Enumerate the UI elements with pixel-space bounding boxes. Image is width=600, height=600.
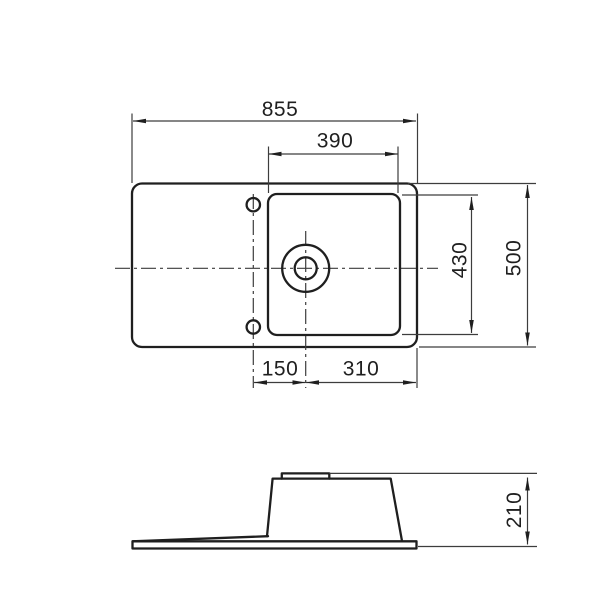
dimension-arrow xyxy=(403,380,416,385)
top-view: 855 390 430 500 xyxy=(115,98,536,388)
dim-label-overall-width: 855 xyxy=(262,98,299,121)
dimension-arrow xyxy=(525,185,530,198)
dim-overall-height: 210 xyxy=(329,473,537,546)
dimension-arrow xyxy=(133,119,146,124)
side-view: 210 xyxy=(133,473,538,548)
dimension-arrow xyxy=(254,380,267,385)
drawing-sheet: 855 390 430 500 xyxy=(0,0,600,600)
dimension-arrow xyxy=(525,532,530,545)
dim-overall-width: 855 xyxy=(132,98,418,183)
dim-label-bowl-depth: 430 xyxy=(449,242,472,279)
dimension-arrow xyxy=(525,478,530,491)
dimension-arrow xyxy=(385,152,398,157)
bowl-profile-outline xyxy=(267,479,402,541)
base-plate-outline xyxy=(133,541,417,548)
dimension-arrow xyxy=(403,119,416,124)
dim-label-holes-to-drain: 150 xyxy=(262,358,299,381)
dimension-arrow xyxy=(269,152,282,157)
dim-bottom-chain: 150 310 xyxy=(254,348,417,388)
dim-label-overall-depth: 500 xyxy=(503,240,526,277)
dim-label-drain-to-right-edge: 310 xyxy=(343,358,380,381)
dim-label-bowl-width: 390 xyxy=(317,130,354,153)
dimension-arrow xyxy=(469,197,474,210)
sink-technical-drawing: 855 390 430 500 xyxy=(0,0,600,600)
dimension-arrow xyxy=(293,380,306,385)
dimension-arrow xyxy=(306,380,319,385)
sink-body-outline xyxy=(132,184,417,348)
dim-label-overall-height: 210 xyxy=(503,492,526,529)
dimension-arrow xyxy=(525,333,530,346)
dimension-arrow xyxy=(469,320,474,333)
